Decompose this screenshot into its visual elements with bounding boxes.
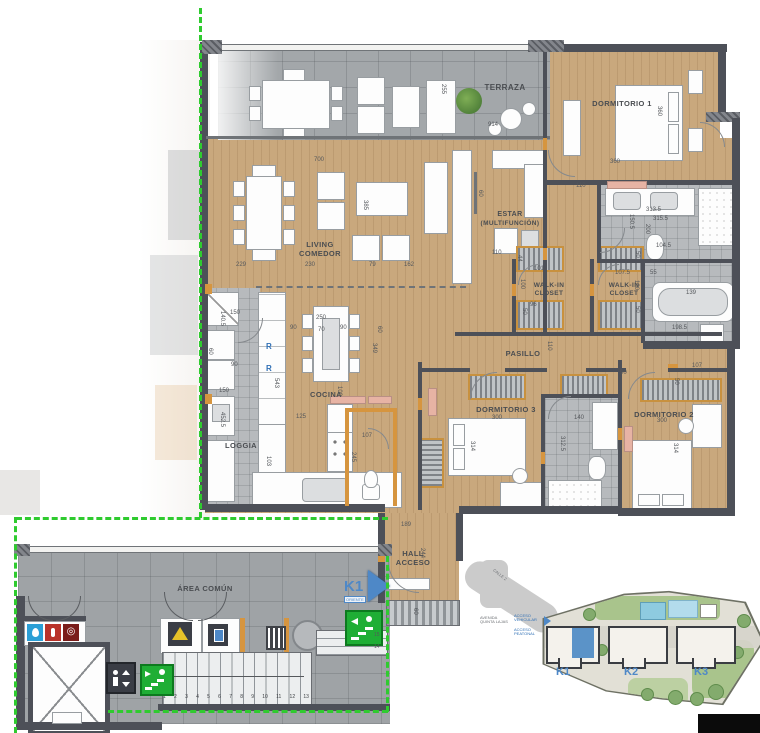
dim-label: 140.5 [219,311,225,326]
fire-hose-icon: ◎ [63,624,79,641]
site-label-k2: K2 [624,666,638,678]
desk-chair [512,468,528,484]
wood-trim [240,618,245,652]
floor-plan-canvas: { "rooms": [ {"label": "TERRAZA"}, {"lab… [0,0,760,733]
dim-label: 50 [521,308,527,315]
dorm3-side-closet [420,438,444,488]
washer [207,330,235,360]
appliance-strip [368,396,392,404]
site-pavilion [700,604,717,618]
bath1-shower [698,188,736,246]
ottoman [352,235,380,261]
dining-chair [233,181,245,197]
bath1-basin [613,192,641,210]
room-label-estar2: (MULTIFUNCIÓN) [481,220,540,227]
dim-label: 96 [530,302,537,308]
terrace-round-table [500,108,522,130]
wall [202,40,222,54]
wall [418,368,470,372]
trash-bin [266,626,286,650]
dim-label: 198.5 [672,325,687,331]
plant [456,88,482,114]
faded-adjacent-fragment [0,470,40,515]
wall [718,44,726,118]
exit-stairs-sign [345,610,383,646]
dim-label: 452.5 [219,412,225,427]
wall [618,508,735,516]
faded-adjacent-wall [168,150,202,240]
pillow [662,494,684,506]
pillow [668,124,679,154]
desk [692,404,722,448]
terrace-chair [522,102,536,116]
dim-label: 50 [634,306,640,313]
stair-rail-line [168,676,304,677]
wc-wall [345,408,349,506]
stool [302,314,313,329]
stair-step-numbers: 12345678910111213 [163,694,309,700]
site-pool [640,602,666,620]
dim-label: 229 [236,262,246,268]
dim-label: 200 [644,224,650,234]
dim-label: 100 [633,280,639,290]
common-railing [18,546,390,553]
dresser [563,100,581,156]
step-number: 3 [185,694,188,700]
dim-label: 150 [230,310,240,316]
step-number: 4 [196,694,199,700]
wall [16,722,162,730]
desk [500,482,542,508]
dim-label: 70 [318,327,325,333]
site-pool-deck [668,600,698,618]
bath3-toilet [588,456,606,480]
dining-chair [283,181,295,197]
room-label-estar: ESTAR [497,211,522,218]
step-number: 11 [276,694,281,700]
dining-table [246,176,282,250]
stool [349,336,360,351]
terrace-chair [249,106,261,121]
step-number: 5 [207,694,210,700]
wall [590,259,594,335]
stool [349,314,360,329]
electrical-hazard-sign [168,622,192,646]
step-number: 12 [290,694,296,700]
wood-trim [205,284,212,294]
kitchen-tall-cabinets [258,292,286,426]
dim-label: 50 [634,251,640,258]
wall [641,261,645,343]
dim-label: 55 [650,270,657,276]
dim-label: 349 [371,343,377,353]
room-label-loggia: LOGGIA [225,441,257,450]
dim-label: 360 [656,106,662,116]
corner-black-block [698,714,760,733]
site-access-arrow [544,616,551,626]
faded-adjacent-furniture [150,255,198,355]
dim-label: 245 [350,452,356,462]
tree [708,684,724,700]
wall [459,506,621,514]
site-building-k1-highlight [572,628,594,658]
shelving-unit [452,150,472,284]
coffee-table [356,182,408,216]
wall [455,332,722,336]
ceiling-projection-line [256,286,466,288]
step-number: 9 [251,694,254,700]
room-label-walkin1b: CLOSET [535,290,564,297]
door-arc [700,122,725,147]
dim-label: 79 [369,262,376,268]
dim-label: 60 [412,608,418,615]
armchair [317,172,345,200]
dim-label: 162 [404,262,414,268]
dim-label: 914 [488,122,498,128]
exit-stairs-sign [140,664,174,696]
tree [641,688,654,701]
wall [456,513,463,561]
tv-cabinet [424,162,448,234]
room-label-pasillo: PASILLO [506,349,541,358]
bench [624,426,633,452]
kitchen-lower-cabinets [258,424,286,474]
bench [607,181,647,189]
dining-chair [283,205,295,221]
elevator-car-door [52,712,82,724]
wall [205,504,385,512]
site-label-k3: K3 [694,666,708,678]
wall [378,544,392,556]
wall [643,341,740,349]
kitchen-sink [302,478,348,502]
room-label-hall2: ACCESO [396,558,431,567]
dim-label: 107.5 [615,270,630,276]
wood-trim [541,452,545,464]
tree [690,692,704,706]
room-label-walkin1: WALK-IN [534,282,565,289]
terraza-living-glazing [206,136,550,139]
wood-trim [543,248,547,260]
wood-trim [618,428,622,440]
wall [732,118,740,348]
room-label-walkin2b: CLOSET [610,290,639,297]
stool [302,336,313,351]
unit-boundary-dashed [108,710,388,713]
pillow [638,494,660,506]
wood-trim [668,364,678,368]
faded-adjacent-furniture [155,385,197,460]
room-label-living: LIVING [306,240,333,249]
room-label-dormitorio-1: DORMITORIO 1 [592,99,652,108]
dim-label: 139 [686,290,696,296]
stool [349,358,360,373]
wall [505,368,547,372]
dim-label: 104.5 [656,243,671,249]
unit-boundary-dashed [14,517,17,733]
room-label-area-comun: ÁREA COMÚN [177,584,232,593]
dim-label: 150.5 [628,214,634,229]
walkin1-closet-bar [516,300,564,330]
dim-label: 315.5 [653,216,668,222]
tree [668,690,683,705]
dim-label: 150 [219,388,229,394]
dim-label: 60 [477,190,483,197]
terrace-chair [249,86,261,101]
terrace-chair [331,106,343,121]
dining-chair [283,229,295,245]
dim-label: 300 [657,418,667,424]
dim-label: 107 [362,433,372,439]
refrigerator-mark: R [266,342,272,351]
bath3-shower [548,480,602,508]
dim-label: 90 [290,325,297,331]
wall [543,145,547,333]
sofa-estar [524,164,544,218]
step-number: 6 [218,694,221,700]
pillow [453,424,465,446]
avenue-label: AVENIDA QUINTA LAJAS [480,616,512,625]
wc-toilet-bowl [364,470,378,488]
terrace-lounge-chair [357,106,385,134]
dining-chair [252,249,276,261]
access-vehicular-label: ACCESO VEHICULAR [514,614,542,623]
dim-label: 100 [519,279,525,289]
dim-label: 100 [336,386,342,396]
dining-chair [252,165,276,177]
dim-label: 60 [376,326,382,333]
dim-label: 90 [620,370,627,376]
bench [428,388,437,416]
dim-label: 255 [440,84,446,94]
dim-label: 244 [419,548,425,558]
nightstand [688,70,703,94]
wall [512,259,516,335]
tree [583,608,596,621]
wood-trim [543,138,547,150]
dim-label: 103 [265,456,271,466]
elevator-icon [106,662,136,694]
room-label-dormitorio-3: DORMITORIO 3 [476,405,536,414]
wood-trim [512,284,516,296]
water-icon [27,624,43,641]
dim-label: 107 [692,363,702,369]
dim-label: 90 [340,325,347,331]
dim-label: 140 [574,415,584,421]
wall [597,259,737,263]
dim-label: 50 [673,378,679,385]
dim-label: 385 [362,200,368,210]
dim-label: 44 [516,255,522,262]
unit-boundary-dashed [199,8,202,518]
wood-trim [418,398,422,410]
wc-wall [393,408,397,506]
dim-label: 300 [492,415,502,421]
kitchen-island-top [322,318,340,370]
terrace-coffee-table [392,86,420,128]
access-peatonal-label: ACCESO PEATONAL [514,628,542,637]
electrical-panel-sign [208,624,228,646]
dim-label: 101 [534,266,544,272]
wall [418,362,422,510]
desk-chair [678,418,694,434]
armchair [317,202,345,230]
room-label-living2: COMEDOR [299,249,341,258]
unit-boundary-dashed [16,517,388,520]
dim-label: 189 [401,522,411,528]
dim-label: 543 [273,378,279,388]
step-number: 7 [229,694,232,700]
wood-trim [205,394,212,404]
dim-label: 700 [314,157,324,163]
stool [302,358,313,373]
refrigerator-mark: R [266,364,272,373]
pillow [453,448,465,470]
wall [727,348,735,516]
walkin2-closet-bar [598,300,644,330]
terrace-lounge-chair [357,77,385,105]
wc-wall [345,408,397,412]
dim-label: 110 [492,250,502,256]
dim-label: 110 [546,341,552,351]
step-number: 15 [374,632,380,638]
dim-label: 110 [576,183,586,189]
step-number: 10 [262,694,268,700]
dim-label: 250 [316,315,326,321]
dim-label: 360 [610,159,620,165]
dim-label: 314 [672,443,678,453]
terrace-chair [283,69,305,81]
ottoman [382,235,410,261]
wall [545,44,727,52]
site-label-k1: K1 [556,666,570,678]
room-label-terraza: TERRAZA [484,83,525,92]
dim-label: 60 [207,348,213,355]
dim-label: 90 [231,362,238,368]
dining-chair [233,205,245,221]
terrace-dining-table [262,80,330,129]
wall [528,40,564,52]
step-number: 14 [374,644,380,650]
wall [543,394,621,398]
step-number: 8 [240,694,243,700]
terrace-chair [331,86,343,101]
dim-label: 314 [469,441,475,451]
terraza-railing [208,44,550,51]
dim-label: 125 [296,414,306,420]
dim-label: 313.5 [646,207,661,213]
bath3-vanity [592,402,618,450]
tree [737,614,751,628]
unit-boundary-dashed [386,556,389,712]
fire-extinguisher-icon [45,624,61,641]
unit-marker-sub: ORIENTE [344,596,366,603]
step-number: 2 [174,694,177,700]
unit-marker-k1: K1 [344,578,363,595]
pillow [668,92,679,122]
dining-chair [233,229,245,245]
entry-mat [386,600,460,626]
dim-label: 230 [305,262,315,268]
dim-label: 312.5 [559,436,565,451]
step-number: 13 [303,694,309,700]
wood-trim [590,284,594,296]
